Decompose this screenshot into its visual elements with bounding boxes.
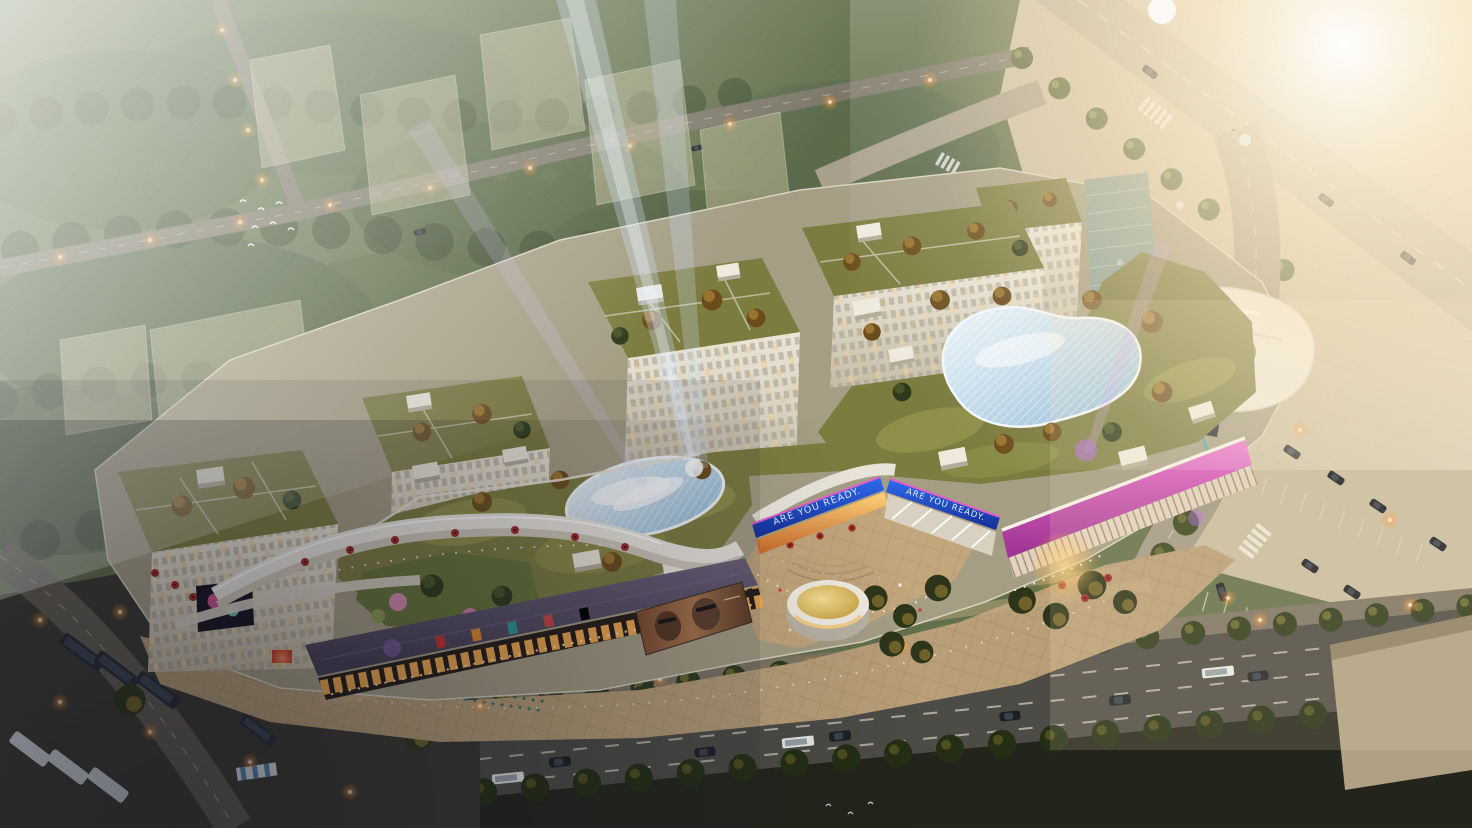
dusk-tint: [0, 380, 760, 828]
warm-wash: [1050, 300, 1472, 750]
scene-canvas: ARE YOU READY. ARE YOU READY.: [0, 0, 1472, 828]
architectural-rendering: ARE YOU READY. ARE YOU READY.: [0, 0, 1472, 828]
